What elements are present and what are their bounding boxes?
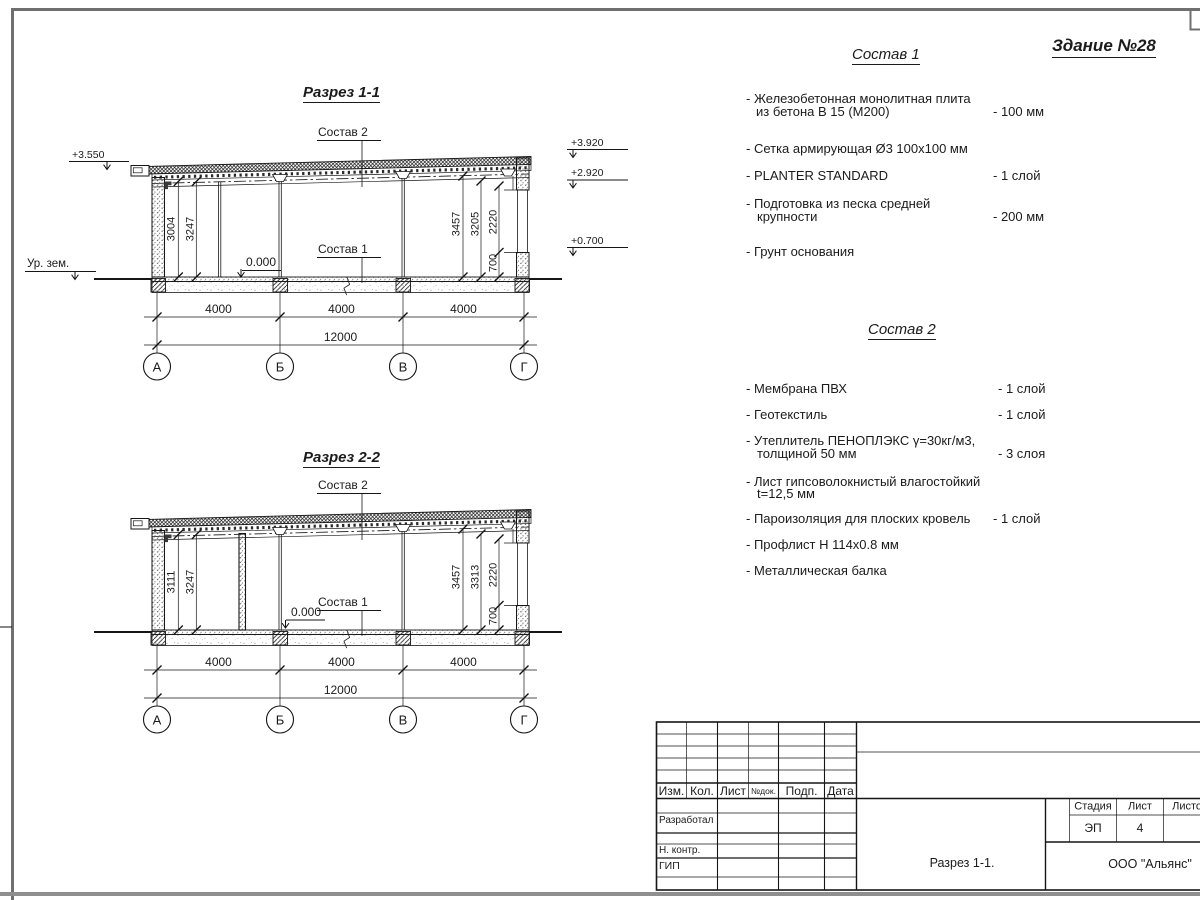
titleblock-col: Кол. <box>690 785 714 797</box>
list-item: - Пароизоляция для плоских кровель <box>746 512 970 527</box>
dim-label: 4000 <box>328 656 355 668</box>
axis-bubble-label: А <box>153 361 162 374</box>
axis-bubble-label: В <box>399 714 408 727</box>
list-item: - Сетка армирующая Ø3 100х100 мм <box>746 142 968 157</box>
section1-elevation-r3: +0.700 <box>571 235 603 247</box>
axis-bubble-label: А <box>153 714 162 727</box>
dim-total-label: 12000 <box>324 684 357 696</box>
axis-bubble-label: Б <box>276 714 285 727</box>
axis-bubble-label: Б <box>276 361 285 374</box>
list-item-value: - 1 слой <box>993 512 1041 527</box>
dim-label: 4000 <box>328 303 355 315</box>
list-item-value: - 1 слой <box>993 169 1041 184</box>
dim-label: 3457 <box>452 212 463 236</box>
list-item: t=12,5 мм <box>757 487 815 502</box>
list-item: - Геотекстиль <box>746 408 827 423</box>
section1-callout-bottom: Состав 1 <box>318 243 368 257</box>
titleblock-col: №док. <box>751 787 776 796</box>
section2-level-zero: 0.000 <box>291 606 321 620</box>
list-item: крупности <box>757 210 817 225</box>
dim-label: 3247 <box>185 217 196 241</box>
dim-label: 3457 <box>452 565 463 589</box>
list-item: - Мембрана ПВХ <box>746 382 847 397</box>
dim-label: 2220 <box>488 210 499 234</box>
dim-label: 3313 <box>470 565 481 589</box>
list-item-value: - 3 слоя <box>998 447 1045 462</box>
stage-header: Стадия <box>1074 802 1112 813</box>
section1-elevation-r2: +2.920 <box>571 167 603 179</box>
section2-callout-bottom: Состав 1 <box>318 596 368 610</box>
sheet-header: Лист <box>1128 802 1152 813</box>
list-item-value: - 1 слой <box>998 382 1046 397</box>
titleblock-row-label: Н. контр. <box>659 845 700 857</box>
dim-label: 4000 <box>450 656 477 668</box>
dim-total-label: 12000 <box>324 331 357 343</box>
axis-bubble-label: Г <box>520 714 527 727</box>
titleblock-row-label: Разработал <box>659 815 713 827</box>
titleblock-col: Лист <box>720 785 746 797</box>
section1-title: Разрез 1-1 <box>303 84 380 103</box>
titleblock-col: Подп. <box>786 785 818 797</box>
company-name: ООО "Альянс" <box>1108 858 1192 871</box>
dim-label: 700 <box>488 607 499 625</box>
section1-ground-label: Ур. зем. <box>27 258 69 271</box>
dim-label: 3004 <box>167 217 178 241</box>
titleblock-col: Дата <box>827 785 854 797</box>
section1-elevation-left: +3.550 <box>72 149 104 161</box>
list-item: - Профлист Н 114х0.8 мм <box>746 538 899 553</box>
sheet-number: 4 <box>1137 822 1144 834</box>
titleblock-col: Изм. <box>659 785 685 797</box>
composition2-title: Состав 2 <box>868 321 936 340</box>
list-item-value: - 200 мм <box>993 210 1044 225</box>
titleblock-row-label: ГИП <box>659 860 680 872</box>
sheets-header: Листов <box>1172 802 1200 813</box>
dim-label: 3205 <box>470 212 481 236</box>
section1-callout-top: Состав 2 <box>318 126 368 140</box>
list-item: из бетона В 15 (М200) <box>756 105 890 120</box>
list-item: - PLANTER STANDARD <box>746 169 888 184</box>
axis-bubble-label: Г <box>520 361 527 374</box>
list-item: - Металлическая балка <box>746 564 887 579</box>
section1-level-zero: 0.000 <box>246 256 276 270</box>
stage-value: ЭП <box>1084 822 1101 834</box>
dim-label: 3111 <box>167 571 178 594</box>
dim-label: 3247 <box>185 570 196 594</box>
list-item: - Грунт основания <box>746 245 854 260</box>
dim-label: 4000 <box>205 656 232 668</box>
dim-label: 4000 <box>450 303 477 315</box>
composition1-title: Состав 1 <box>852 46 920 65</box>
dim-label: 4000 <box>205 303 232 315</box>
section2-title: Разрез 2-2 <box>303 449 380 468</box>
axis-bubble-label: В <box>399 361 408 374</box>
list-item-value: - 100 мм <box>993 105 1044 120</box>
dim-label: 2220 <box>488 563 499 587</box>
building-title: Здание №28 <box>1052 36 1156 58</box>
section1-elevation-r1: +3.920 <box>571 137 603 149</box>
dim-label: 700 <box>488 254 499 272</box>
document-title: Разрез 1-1. <box>930 857 995 870</box>
drawing-sheet: Здание №28 Разрез 1-1 Состав 2 Состав 1 … <box>0 0 1200 900</box>
list-item: толщиной 50 мм <box>757 447 857 462</box>
list-item-value: - 1 слой <box>998 408 1046 423</box>
section2-callout-top: Состав 2 <box>318 479 368 493</box>
